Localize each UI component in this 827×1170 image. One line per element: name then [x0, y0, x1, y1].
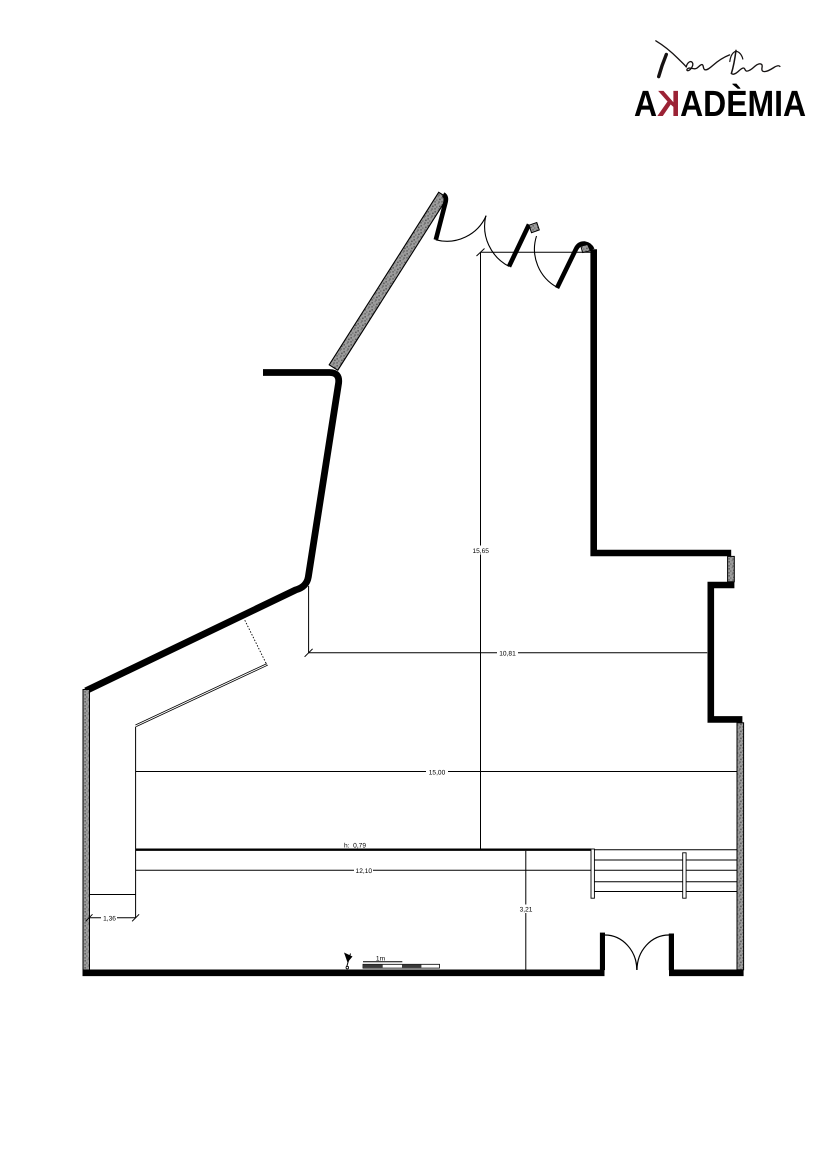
svg-text:A: A: [634, 83, 657, 124]
svg-text:h: 0,79: h: 0,79: [344, 843, 366, 850]
svg-text:ADÈMIA: ADÈMIA: [680, 83, 806, 124]
svg-text:10,81: 10,81: [499, 651, 516, 658]
svg-text:12,10: 12,10: [356, 868, 373, 875]
svg-text:15,65: 15,65: [472, 548, 489, 555]
svg-text:15,00: 15,00: [429, 770, 446, 777]
svg-text:1,36: 1,36: [103, 916, 116, 923]
svg-text:K: K: [656, 83, 680, 124]
svg-text:3,21: 3,21: [520, 907, 533, 914]
